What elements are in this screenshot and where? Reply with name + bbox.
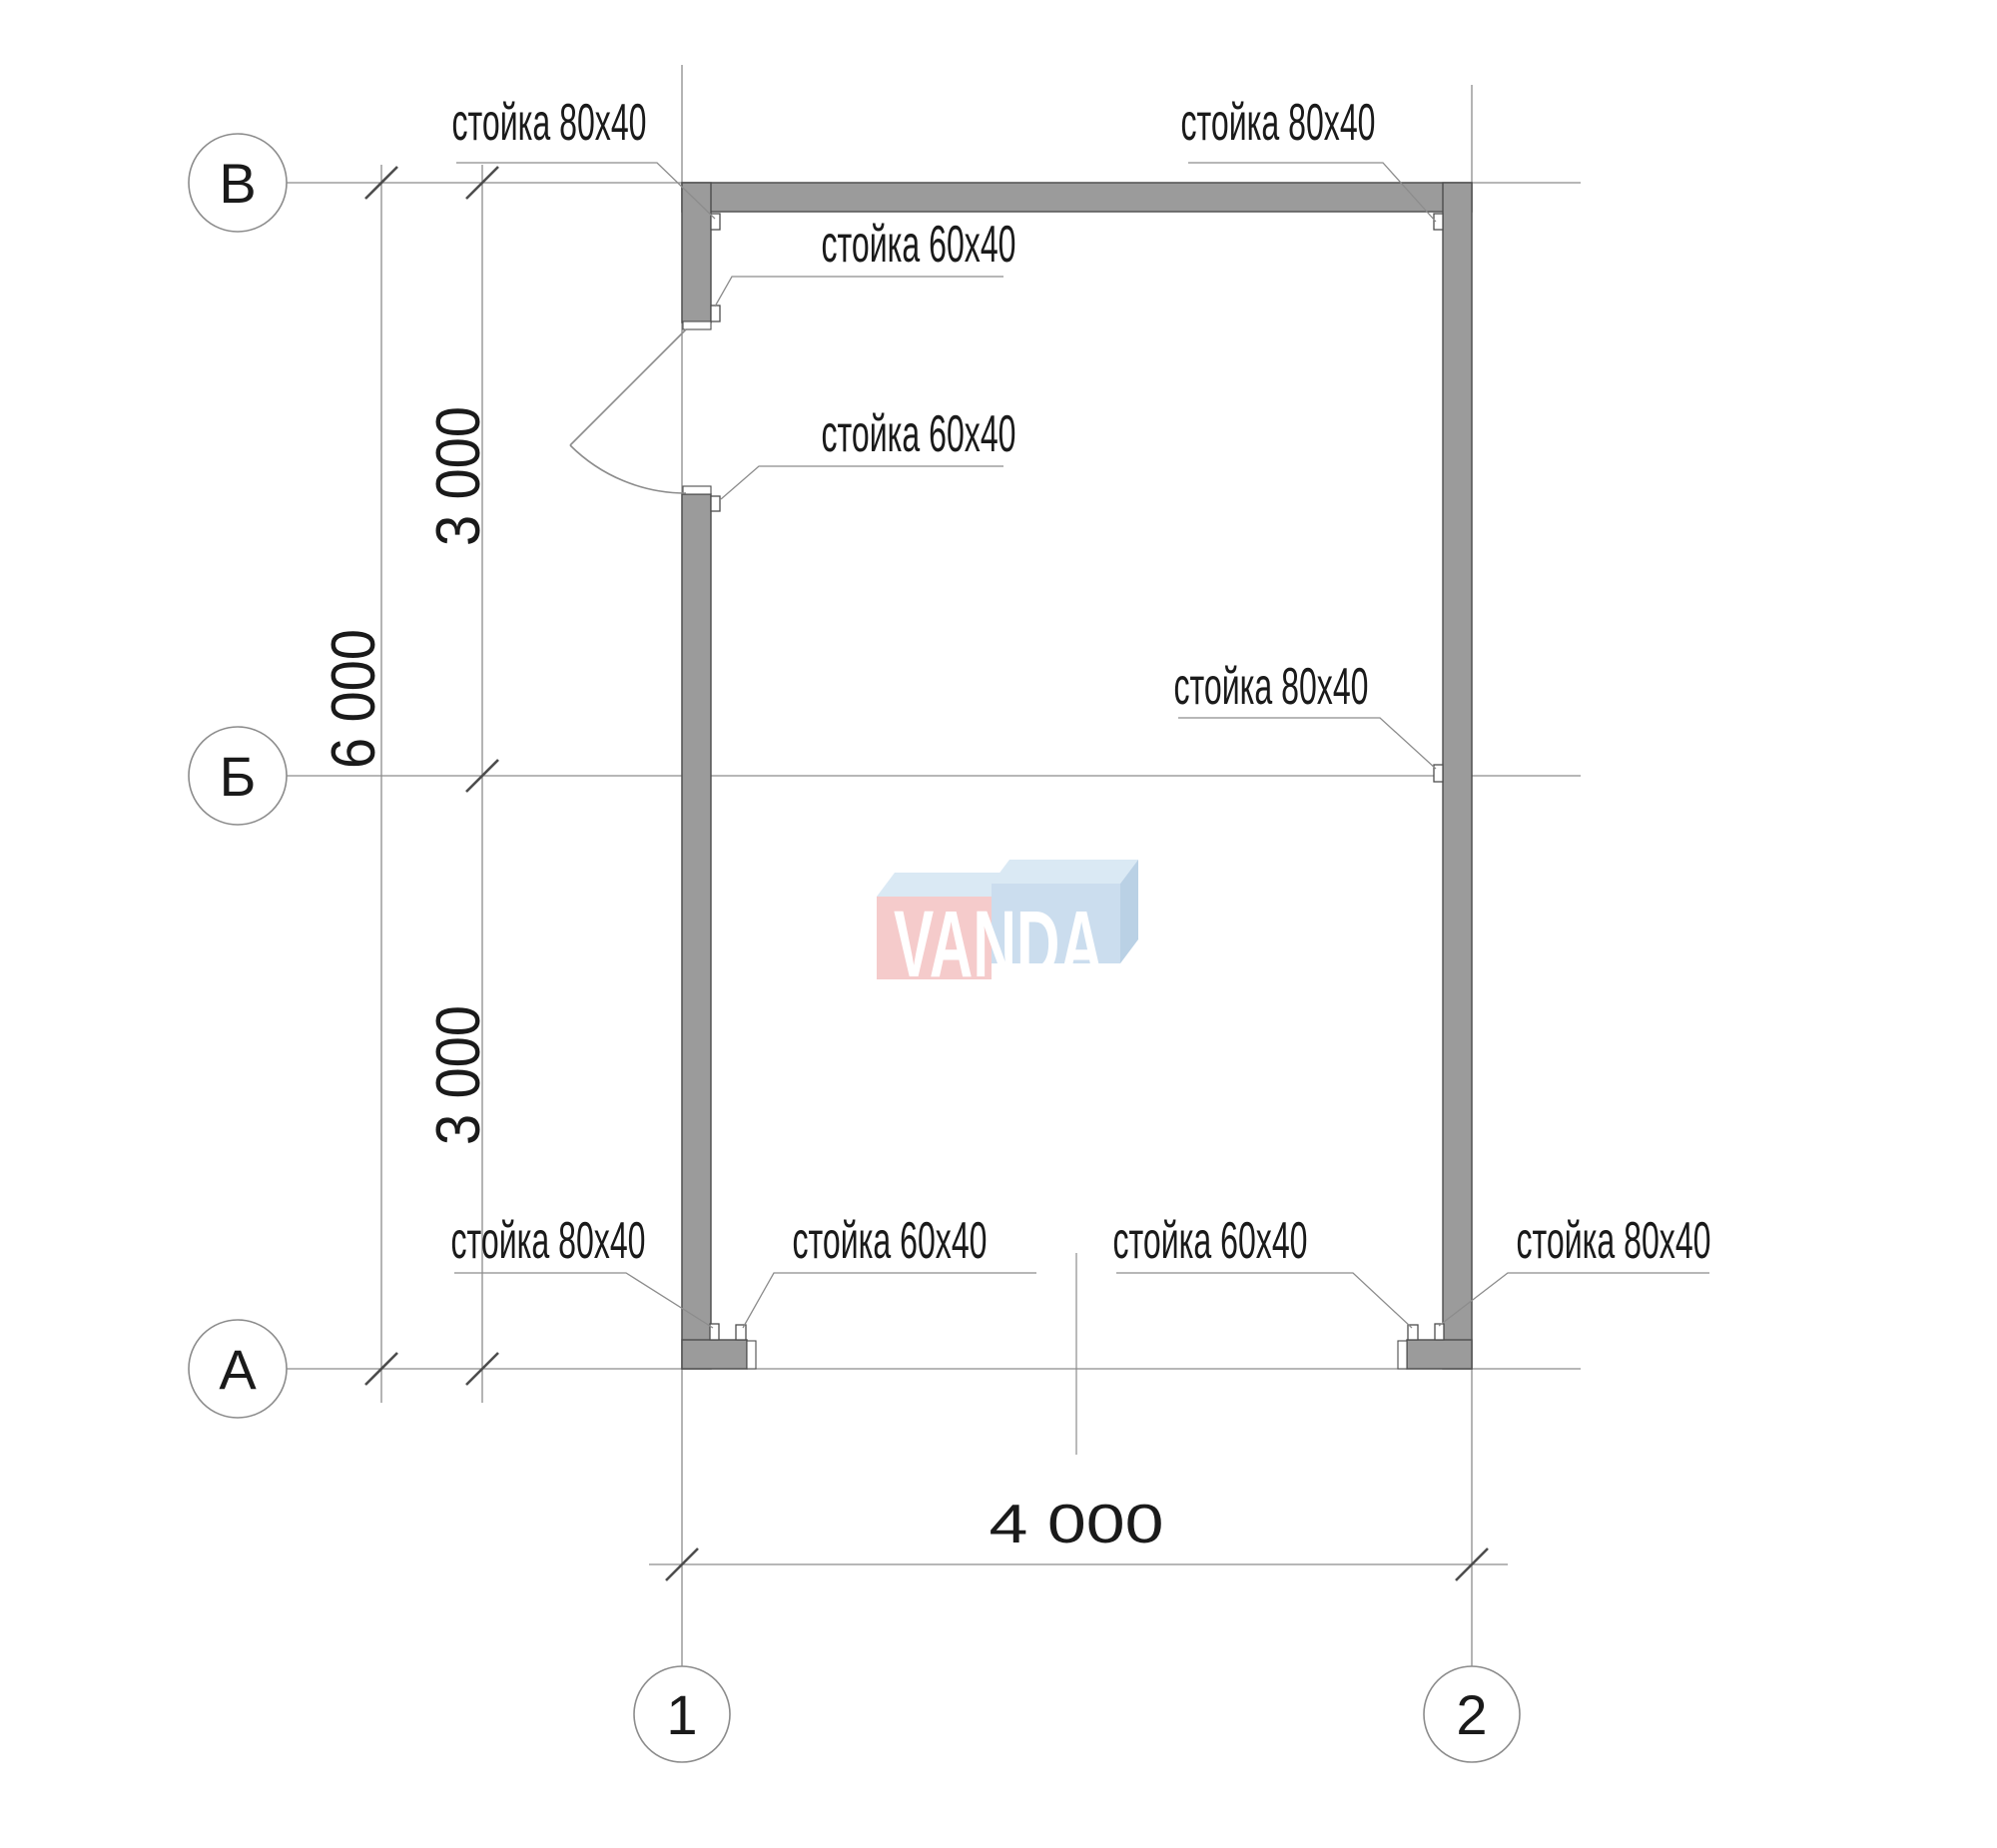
- vanda-watermark: VANDA: [877, 860, 1138, 997]
- callout-bottom-right-corner: стойка 80х40: [1517, 1212, 1711, 1270]
- door-swing-arc: [570, 445, 686, 493]
- opening-frame-bottom-right: [1398, 1341, 1407, 1369]
- post-60x40-door-bottom: [711, 496, 720, 511]
- axis-label-v: В: [219, 152, 256, 215]
- dim-vertical-lower: 3 000: [424, 1005, 493, 1145]
- wall-right: [1443, 183, 1472, 1369]
- door-leaf: [570, 329, 686, 445]
- axis-bubbles: В Б А 1 2: [189, 134, 1520, 1762]
- callout-door-top-jamb: стойка 60х40: [822, 216, 1016, 274]
- dim-vertical-overall: 6 000: [320, 629, 388, 769]
- dim-horizontal-overall: 4 000: [990, 1493, 1164, 1554]
- post-markers: [710, 214, 1444, 1340]
- callout-right-middle: стойка 80х40: [1174, 658, 1369, 716]
- watermark-text: VANDA: [894, 892, 1103, 997]
- post-60x40-door-top: [711, 306, 720, 321]
- door-frame-bottom: [683, 486, 711, 494]
- leader-bottom-right-jamb: [1116, 1273, 1412, 1328]
- wall-left-lower: [682, 494, 711, 1369]
- callout-bottom-left-corner: стойка 80х40: [451, 1212, 646, 1270]
- leader-bottom-left-corner: [454, 1273, 713, 1328]
- axis-label-2: 2: [1456, 1683, 1487, 1746]
- door-frame-top: [683, 321, 711, 329]
- door: [570, 329, 686, 493]
- wall-top: [682, 183, 1472, 212]
- callout-texts: стойка 80х40 стойка 80х40 стойка 60х40 с…: [451, 94, 1711, 1270]
- post-60x40-bottom-left: [736, 1325, 746, 1340]
- opening-frame-bottom-left: [747, 1341, 756, 1369]
- floor-plan-page: VANDA: [0, 0, 1997, 1848]
- floor-plan-drawing: VANDA: [0, 0, 1997, 1848]
- leader-bottom-left-jamb: [743, 1273, 1036, 1328]
- callout-top-left-corner: стойка 80х40: [452, 94, 647, 152]
- axis-grid-lines: [287, 65, 1581, 1666]
- callout-bottom-left-jamb: стойка 60х40: [793, 1212, 988, 1270]
- leader-door-bottom: [721, 466, 1003, 499]
- axis-label-b: Б: [220, 745, 257, 808]
- leader-right-middle: [1178, 718, 1436, 769]
- post-60x40-bottom-right: [1408, 1325, 1418, 1340]
- wall-bottom-left-stub: [682, 1340, 747, 1369]
- wall-left-upper: [682, 183, 711, 322]
- leader-bottom-right-corner: [1439, 1273, 1709, 1326]
- axis-label-1: 1: [666, 1683, 697, 1746]
- callout-leaders: [454, 163, 1709, 1328]
- wall-bottom-right-stub: [1407, 1340, 1472, 1369]
- axis-label-a: А: [219, 1338, 257, 1401]
- callout-top-right-corner: стойка 80х40: [1181, 94, 1376, 152]
- leader-door-top: [715, 277, 1003, 307]
- watermark-blue-box-top: [992, 860, 1138, 884]
- dim-vertical-upper: 3 000: [424, 406, 493, 546]
- callout-door-bottom-jamb: стойка 60х40: [822, 405, 1016, 463]
- callout-bottom-right-jamb: стойка 60х40: [1113, 1212, 1308, 1270]
